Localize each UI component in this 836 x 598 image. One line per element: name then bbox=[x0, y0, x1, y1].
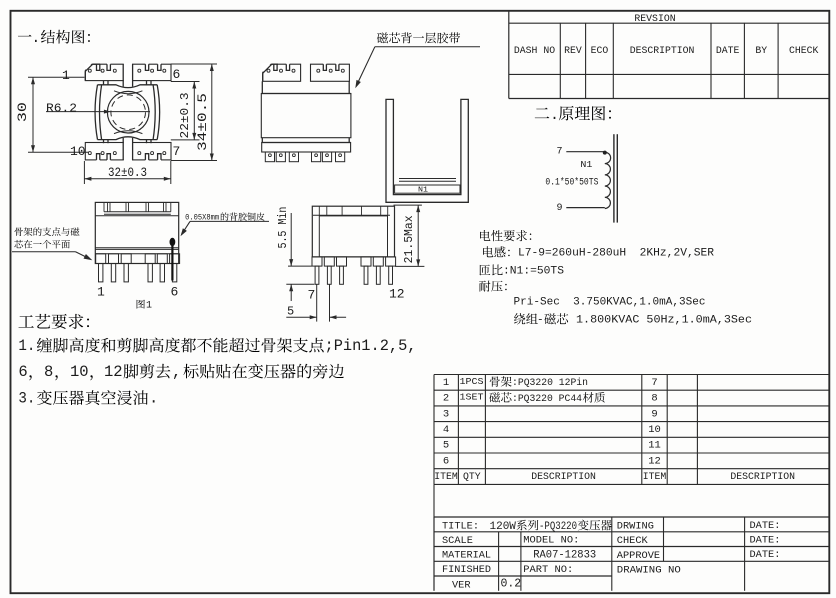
svg-text:7: 7 bbox=[173, 144, 181, 159]
svg-text:21.5Max: 21.5Max bbox=[402, 215, 416, 263]
svg-text:7: 7 bbox=[308, 288, 316, 303]
svg-text:30: 30 bbox=[16, 102, 30, 122]
svg-text:4: 4 bbox=[443, 424, 449, 436]
svg-text:DATE:: DATE: bbox=[750, 520, 781, 532]
svg-text:-: - bbox=[537, 314, 544, 326]
svg-text:1PCS: 1PCS bbox=[460, 376, 484, 387]
svg-text:34±0.5: 34±0.5 bbox=[195, 93, 210, 151]
svg-text:PART NO:: PART NO: bbox=[523, 564, 573, 576]
svg-text:DASH NO: DASH NO bbox=[514, 45, 555, 56]
svg-text:5: 5 bbox=[287, 304, 294, 318]
svg-text:1: 1 bbox=[146, 300, 152, 311]
svg-text:Pri-Sec 3.750KVAC,1.0mA,3Sec: Pri-Sec 3.750KVAC,1.0mA,3Sec bbox=[514, 296, 706, 308]
svg-text:VER: VER bbox=[452, 580, 471, 592]
svg-text:3.: 3. bbox=[18, 390, 35, 408]
svg-text:12: 12 bbox=[104, 363, 123, 381]
svg-text:MATERIAL: MATERIAL bbox=[442, 550, 491, 562]
svg-text:;Pin1.2,5,: ;Pin1.2,5, bbox=[325, 337, 417, 355]
svg-text:9: 9 bbox=[557, 203, 563, 214]
svg-text:REVSION: REVSION bbox=[634, 13, 675, 24]
svg-text:BY: BY bbox=[755, 45, 767, 56]
svg-text:REV: REV bbox=[564, 45, 582, 56]
svg-text:CHECK: CHECK bbox=[617, 535, 649, 547]
svg-text:1.: 1. bbox=[18, 337, 35, 355]
svg-text:1: 1 bbox=[97, 285, 105, 300]
svg-text::N1:=50TS: :N1:=50TS bbox=[503, 266, 564, 278]
svg-text:APPROVE: APPROVE bbox=[617, 550, 660, 562]
svg-text:7: 7 bbox=[557, 147, 563, 158]
svg-text:DRWING: DRWING bbox=[617, 521, 654, 533]
svg-text:QTY: QTY bbox=[463, 471, 481, 482]
svg-text:10: 10 bbox=[70, 363, 89, 381]
svg-text:10: 10 bbox=[70, 144, 86, 159]
svg-text:12: 12 bbox=[389, 287, 405, 302]
svg-text:DESCRIPTION: DESCRIPTION bbox=[730, 471, 795, 482]
svg-text:22±0.3: 22±0.3 bbox=[178, 92, 192, 138]
svg-text:6: 6 bbox=[171, 285, 179, 300]
svg-text:8: 8 bbox=[651, 393, 657, 405]
svg-text:DATE:: DATE: bbox=[750, 549, 781, 561]
svg-text:ITEM: ITEM bbox=[643, 471, 667, 482]
svg-text:DESCRIPTION: DESCRIPTION bbox=[531, 471, 596, 482]
svg-text:2: 2 bbox=[443, 393, 449, 405]
svg-text:5.5 Min: 5.5 Min bbox=[276, 207, 290, 249]
svg-text:RA07-12833: RA07-12833 bbox=[533, 549, 596, 561]
svg-text:L7-9=260uH-280uH 2KHz,2V,SER: L7-9=260uH-280uH 2KHz,2V,SER bbox=[518, 248, 714, 260]
svg-text:32±0.3: 32±0.3 bbox=[108, 166, 147, 180]
svg-text:R6.2: R6.2 bbox=[46, 103, 77, 116]
svg-text:ECO: ECO bbox=[591, 45, 609, 56]
svg-text:,: , bbox=[172, 363, 181, 381]
svg-text:.: . bbox=[550, 107, 559, 124]
svg-text:ITEM: ITEM bbox=[434, 471, 458, 482]
svg-text:0.1*50*50TS: 0.1*50*50TS bbox=[545, 176, 598, 187]
svg-text:N1: N1 bbox=[580, 159, 592, 170]
svg-text:7: 7 bbox=[651, 377, 657, 389]
svg-text:SCALE: SCALE bbox=[442, 535, 473, 547]
svg-text:1.800KVAC 50Hz,1.0mA,3Sec: 1.800KVAC 50Hz,1.0mA,3Sec bbox=[576, 315, 752, 327]
svg-text:.: . bbox=[32, 31, 41, 47]
svg-text:1SET: 1SET bbox=[460, 391, 484, 402]
svg-text:8: 8 bbox=[44, 363, 53, 381]
svg-text:MODEL NO:: MODEL NO: bbox=[523, 535, 579, 547]
svg-text:DATE:: DATE: bbox=[750, 534, 781, 546]
svg-text:-PQ3220: -PQ3220 bbox=[539, 521, 577, 533]
svg-text:N1: N1 bbox=[418, 186, 429, 194]
svg-text:11: 11 bbox=[648, 440, 661, 452]
svg-text::PQ3220 PC44: :PQ3220 PC44 bbox=[512, 393, 582, 405]
svg-text:6: 6 bbox=[443, 455, 449, 467]
svg-text:10: 10 bbox=[648, 424, 661, 436]
svg-text:DATE: DATE bbox=[716, 45, 740, 56]
svg-text:1: 1 bbox=[443, 377, 449, 389]
svg-text:1: 1 bbox=[62, 68, 70, 83]
svg-text:FINISHED: FINISHED bbox=[442, 564, 491, 576]
svg-text:CHECK: CHECK bbox=[789, 45, 819, 56]
svg-text:5: 5 bbox=[443, 440, 449, 452]
svg-text:3: 3 bbox=[443, 408, 449, 420]
svg-text:0.2: 0.2 bbox=[501, 578, 522, 591]
svg-text::PQ3220 12Pin: :PQ3220 12Pin bbox=[512, 377, 588, 389]
svg-text:9: 9 bbox=[651, 408, 657, 420]
svg-text:12: 12 bbox=[648, 455, 661, 467]
svg-text:DESCRIPTION: DESCRIPTION bbox=[630, 45, 695, 56]
svg-text:120W: 120W bbox=[490, 521, 517, 533]
svg-text:TITLE:: TITLE: bbox=[442, 521, 479, 533]
svg-text:DRAWING NO: DRAWING NO bbox=[617, 564, 681, 576]
svg-text:6: 6 bbox=[18, 363, 27, 381]
svg-text:.: . bbox=[149, 390, 158, 408]
svg-text:6: 6 bbox=[173, 67, 181, 82]
